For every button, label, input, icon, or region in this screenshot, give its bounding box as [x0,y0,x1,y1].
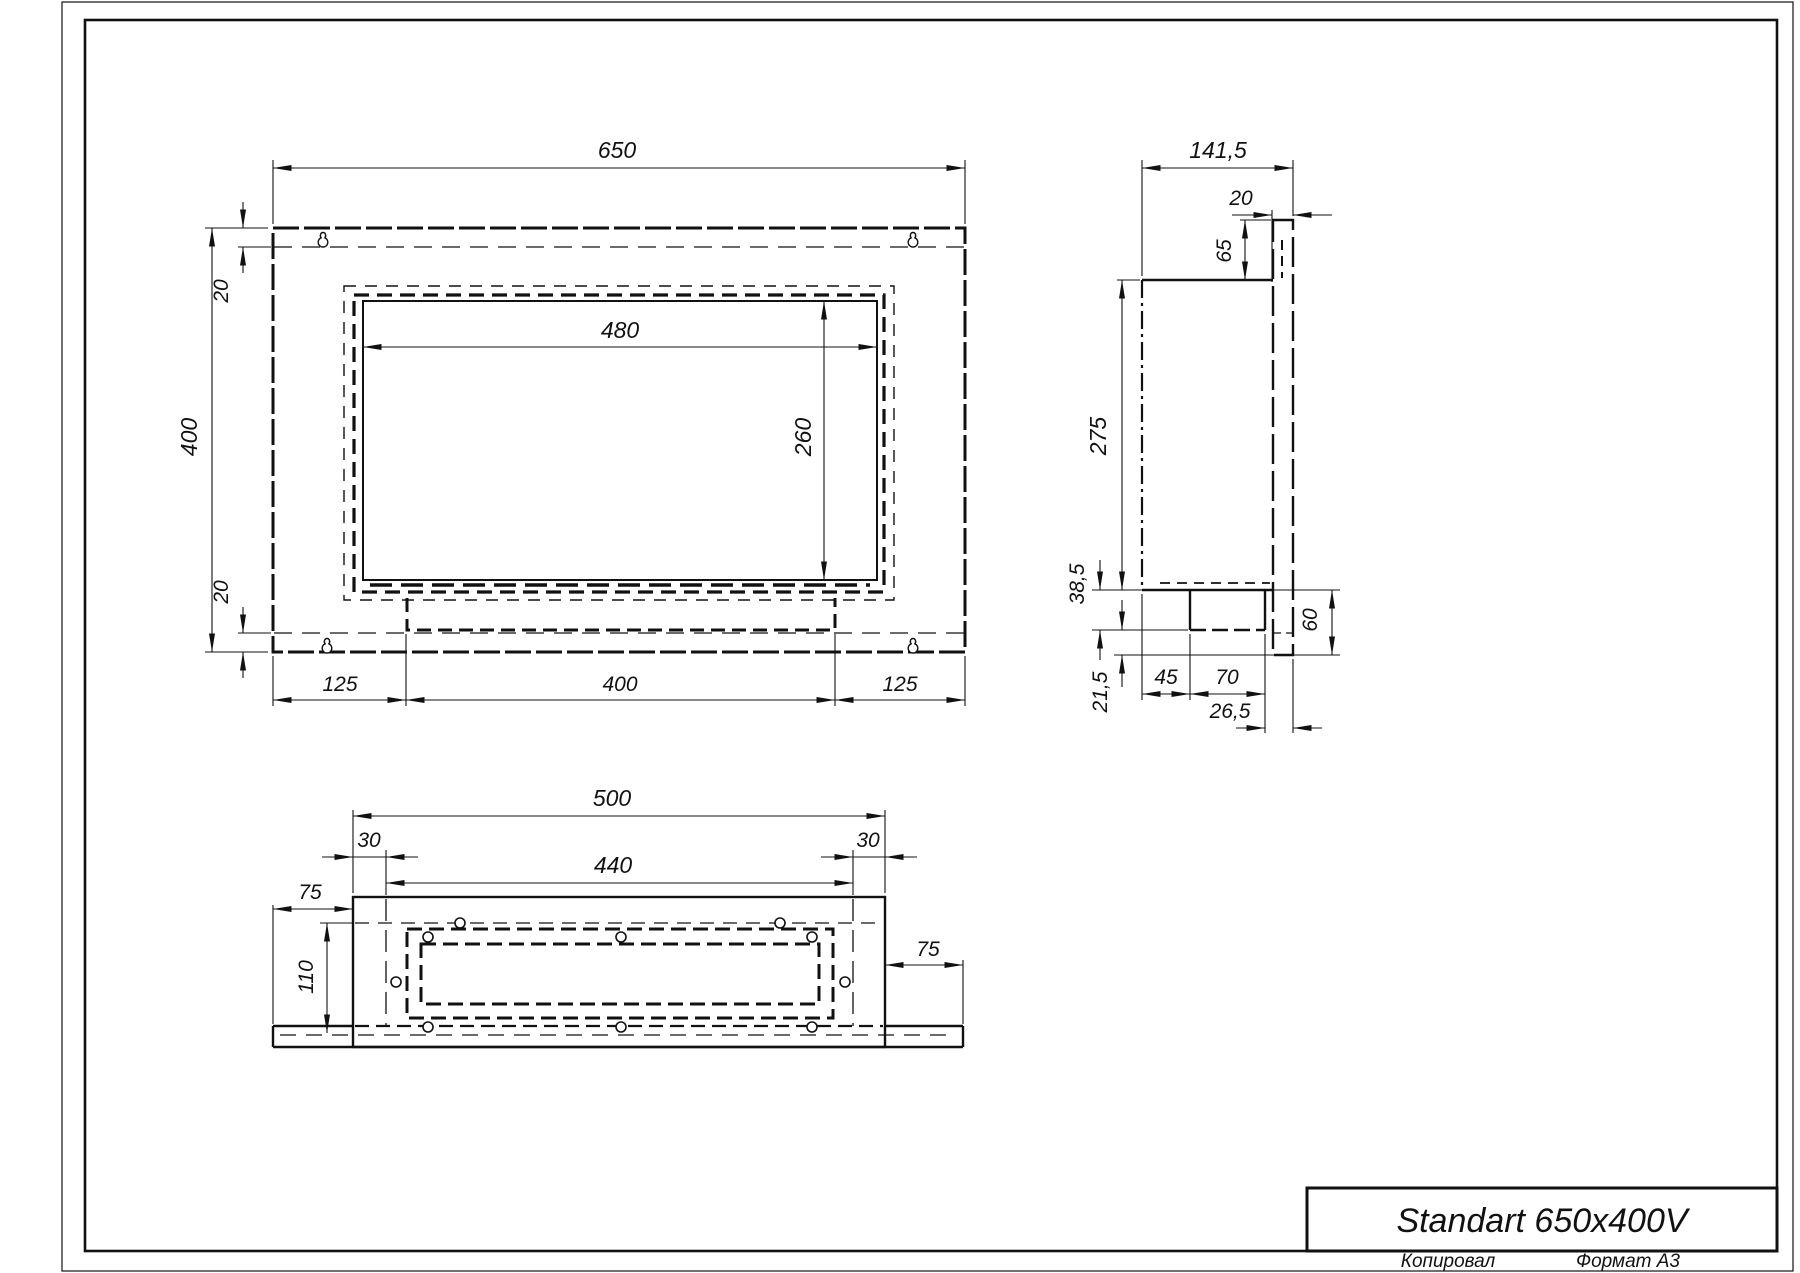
dim-front-right-margin: 125 [882,673,917,696]
dim-side-body-height: 275 [1085,417,1111,457]
dim-bottom-left-wall: 30 [357,829,381,852]
dim-front-burner-width: 400 [602,673,637,696]
keyhole-icon [322,639,332,654]
dim-front-left-margin: 125 [322,673,357,696]
screw-hole [391,977,401,987]
dim-side-lower-height: 38,5 [1066,563,1089,604]
drawing-title: Standart 650x400V [1396,1202,1690,1240]
side-dimension-labels: 141,5 20 65 275 38,5 21,5 60 45 70 26,5 [1066,137,1322,723]
front-outer-outline [273,228,965,652]
dim-front-bottom-offset: 20 [210,580,233,605]
dim-side-flange-offset: 26,5 [1209,700,1251,723]
screw-hole [616,932,626,942]
bottom-burner-inner-hidden [421,944,819,1004]
footer-copied-label: Копировал [1401,1251,1496,1272]
dim-bottom-right-wall: 30 [856,829,880,852]
dim-front-height: 400 [176,418,202,457]
screw-hole [775,918,785,928]
side-view: 141,5 20 65 275 38,5 21,5 60 45 70 26,5 [1066,137,1340,733]
keyhole-icon [318,233,328,248]
dim-bottom-flange-right: 75 [916,938,940,961]
dim-bottom-inner-width: 440 [594,852,633,878]
drawing-canvas: 650 400 20 20 480 260 125 400 125 [0,0,1800,1273]
dim-front-opening-width: 480 [601,317,640,343]
screw-hole [423,1022,433,1032]
screw-hole [807,932,817,942]
keyhole-icon [908,639,918,654]
dim-bottom-box-width: 500 [593,785,632,811]
dim-side-depth: 141,5 [1189,137,1247,163]
front-view: 650 400 20 20 480 260 125 400 125 [176,137,965,706]
front-burner-hidden [407,598,835,630]
bottom-view: 500 30 30 440 75 75 110 [273,785,963,1047]
dim-side-top-inset: 65 [1213,239,1236,263]
dim-side-bottom-total: 60 [1299,608,1322,632]
screw-hole [807,1022,817,1032]
keyhole-icon [908,233,918,248]
inner-frame [85,20,1777,1251]
dim-front-opening-height: 260 [790,418,816,458]
dim-bottom-depth: 110 [295,960,318,994]
sheet-edge [62,2,1793,1271]
dim-front-top-offset: 20 [210,279,233,304]
dim-front-width: 650 [598,137,637,163]
screw-hole [840,977,850,987]
screw-hole [423,932,433,942]
sheet-frame [62,2,1793,1271]
dim-bottom-flange-left: 75 [298,881,322,904]
dim-side-foot-height: 21,5 [1089,671,1112,713]
dim-side-inset-left: 45 [1154,666,1178,689]
screw-holes [391,918,850,1032]
title-block: Standart 650x400V Копировал Формат А3 [1307,1188,1777,1272]
front-dimension-labels: 650 400 20 20 480 260 125 400 125 [176,137,918,696]
drawing-sheet: 650 400 20 20 480 260 125 400 125 [0,0,1800,1273]
screw-hole [616,1022,626,1032]
dim-side-flange-width: 20 [1228,187,1253,210]
footer-format-label: Формат А3 [1576,1251,1680,1272]
screw-hole [455,918,465,928]
dim-side-burner-depth: 70 [1215,666,1239,689]
